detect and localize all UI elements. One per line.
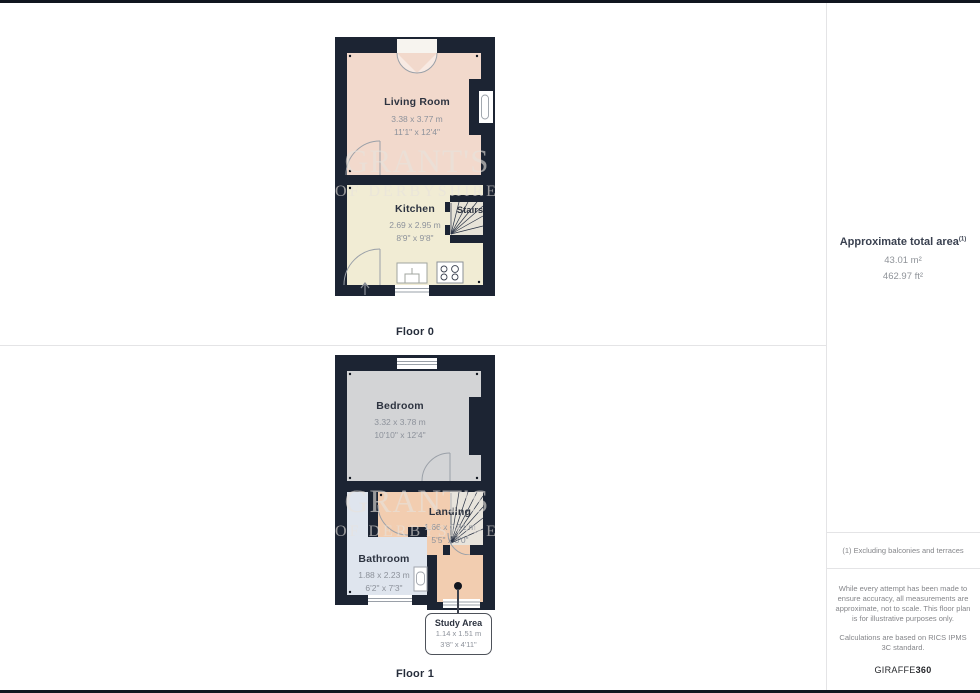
total-area-ft2: 462.97 ft²: [826, 269, 980, 285]
sink-icon: [397, 263, 427, 283]
giraffe360-logo: GIRAFFE360: [834, 665, 972, 675]
disclaimer-text-2: Calculations are based on RICS IPMS 3C s…: [834, 633, 972, 653]
total-area-values: 43.01 m² 462.97 ft²: [826, 253, 980, 285]
floor0-caption: Floor 0: [345, 326, 485, 338]
study-window-icon: [443, 599, 480, 608]
floors-divider: [0, 345, 826, 346]
hall-wall: [368, 492, 378, 537]
total-area-heading: Approximate total area(1): [826, 236, 980, 248]
total-area-block: Approximate total area(1) 43.01 m² 462.9…: [826, 236, 980, 285]
bedroom-wall-left: [347, 481, 422, 492]
bedroom-wall-recess: [469, 397, 495, 455]
footnote-box: (1) Excluding balconies and terraces: [826, 532, 980, 569]
bedroom-window-icon: [397, 358, 437, 369]
room-label-bathroom: Bathroom 1.88 x 2.23 m 6'2" x 7'3": [324, 553, 444, 595]
study-callout-leader: [457, 589, 459, 614]
footnote-marker: (1): [959, 236, 966, 242]
hob-icon: [437, 262, 463, 283]
study-area-callout: Study Area 1.14 x 1.51 m 3'8" x 4'11": [425, 613, 492, 655]
bathroom-upper-floor: [347, 492, 368, 537]
floorplan-page: Living Room 3.38 x 3.77 m 11'1" x 12'4" …: [0, 0, 980, 693]
room-label-living-room: Living Room 3.38 x 3.77 m 11'1" x 12'4": [347, 96, 487, 139]
floor1-caption: Floor 1: [345, 668, 485, 680]
top-border: [0, 0, 980, 3]
bedroom-wall-right: [450, 481, 495, 492]
room-label-bedroom: Bedroom 3.32 x 3.78 m 10'10" x 12'4": [330, 400, 470, 442]
kitchen-window-icon: [395, 285, 429, 296]
total-area-m2: 43.01 m²: [826, 253, 980, 269]
floor0-plan: [335, 37, 495, 296]
disclaimer-text-1: While every attempt has been made to ens…: [834, 584, 972, 624]
disclaimer-box: While every attempt has been made to ens…: [826, 569, 980, 675]
room-label-landing: Landing 1.66 x 0.91 m 5'5" x 3'0": [390, 506, 510, 547]
bathroom-window-icon: [368, 595, 412, 605]
living-kitchen-wall: [380, 175, 495, 185]
room-label-stairs: Stairs: [438, 205, 502, 216]
